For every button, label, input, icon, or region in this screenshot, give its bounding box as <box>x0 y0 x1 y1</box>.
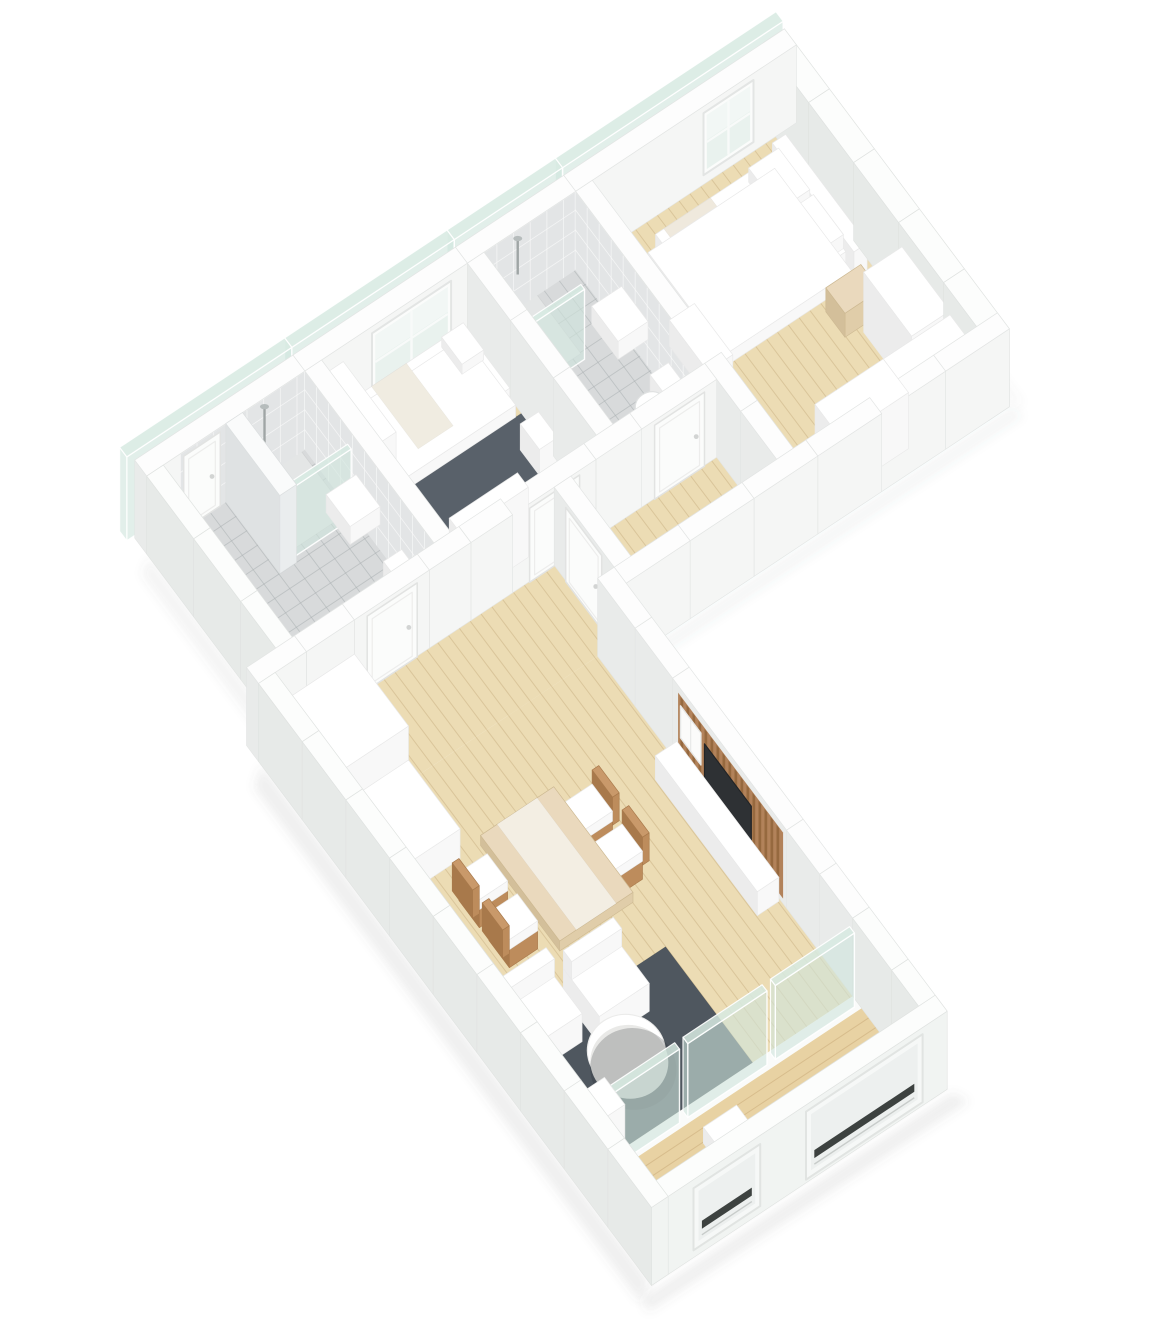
floorplan-page <box>0 0 1170 1332</box>
floorplan-3d-render <box>0 0 1170 1332</box>
